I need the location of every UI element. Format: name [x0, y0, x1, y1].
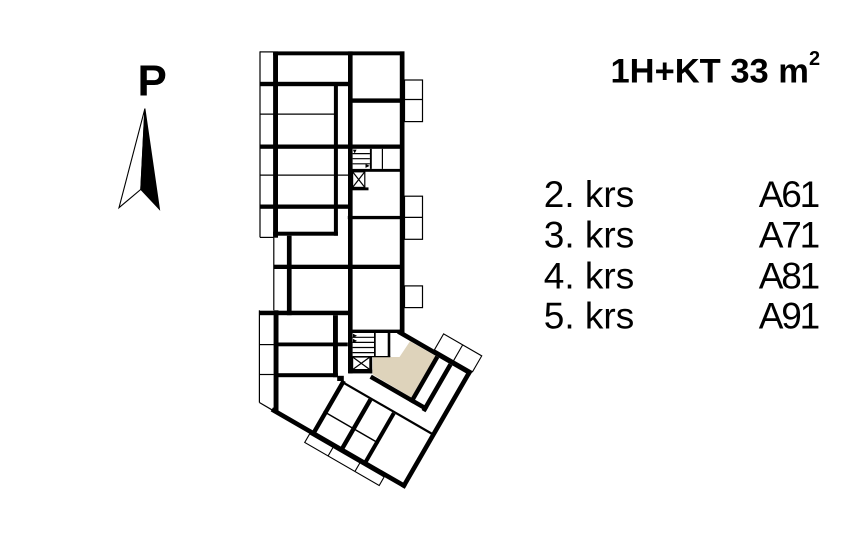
- svg-text:2. krs: 2. krs: [544, 174, 634, 215]
- svg-text:4. krs: 4. krs: [544, 255, 634, 296]
- svg-text:A81: A81: [759, 255, 819, 296]
- svg-text:A61: A61: [759, 174, 819, 215]
- svg-text:1H+KT 33 m2: 1H+KT 33 m2: [611, 48, 821, 91]
- svg-text:A71: A71: [759, 214, 819, 255]
- svg-text:5. krs: 5. krs: [544, 296, 634, 337]
- svg-text:3. krs: 3. krs: [544, 214, 634, 255]
- svg-text:A91: A91: [759, 296, 819, 337]
- svg-text:P: P: [138, 57, 167, 106]
